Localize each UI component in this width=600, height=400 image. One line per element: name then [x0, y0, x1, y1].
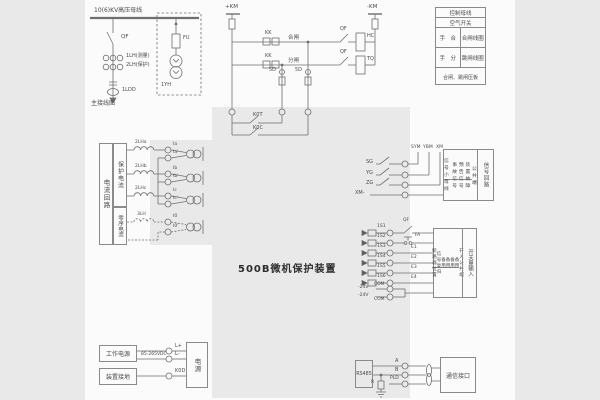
- di-com-label-1: COM: [374, 283, 385, 288]
- legend-row-air-switch: 空气开关: [436, 18, 485, 28]
- comm-wire-b-label: B: [395, 368, 398, 373]
- signal-bus-ybm: YBM: [423, 146, 433, 151]
- terminal-l-plus: L+: [175, 344, 182, 349]
- di-input-6: 1S6: [377, 275, 386, 280]
- terminal-ia: Ia: [173, 143, 177, 148]
- signal-row-bus: 信号小母线: [444, 170, 452, 180]
- di-side-column: 开关量输入: [462, 229, 477, 297]
- signal-row-accident: 事故信号: [452, 170, 459, 180]
- di-neg24-label-1: -24V: [358, 286, 368, 291]
- hv-bus-label: 10(6)KV高压母线: [94, 8, 142, 14]
- terminal-ib: Ib: [173, 167, 177, 172]
- di-spare-1: E1: [411, 246, 417, 251]
- contact-zg: ZG: [366, 181, 373, 186]
- positive-bus-label: +KM: [225, 5, 238, 11]
- legend-manual-trip: 手 分: [436, 48, 461, 67]
- qf-aux-label-1: QF: [340, 27, 347, 32]
- zero-seq-current-column: 零序电流: [113, 207, 127, 245]
- ct-measure-label: 1LH(测量): [126, 54, 150, 59]
- kk-switch-label-1: KK: [265, 31, 272, 36]
- pt-label: 1YH: [161, 83, 171, 88]
- signal-bus-xm: XM: [436, 146, 443, 151]
- signal-row-fault: 装置故障: [465, 170, 472, 180]
- di-spare-3: E3: [411, 266, 417, 271]
- di-spare-4: E4: [411, 276, 417, 281]
- control-legend-table: 控制母线 空气开关 手 合 合闸线圈 手 分 跳闸线圈 合闸、跳闸压板: [435, 7, 486, 85]
- signal-row-warning: 预告信号: [459, 170, 466, 180]
- contact-yg: YG: [366, 171, 373, 176]
- negative-bus-label: -KM: [367, 5, 377, 11]
- schematic-page: 10(6)KV高压母线 QF 1LH(测量) 2LH(保护) 1LDD 主接线图…: [0, 0, 600, 400]
- legend-trip-coil: 跳闸线圈: [461, 48, 485, 67]
- branch-fuse-label-1: 5D: [269, 68, 276, 73]
- device-analog-block: [150, 140, 212, 245]
- di-input-4: 1S4: [377, 255, 386, 260]
- comm-wire-a-label: A: [395, 359, 398, 364]
- current-loop-column: 电流回路: [99, 143, 113, 245]
- terminal-ic: Ic: [173, 189, 177, 194]
- zero-ct-label: 1LDD: [122, 88, 136, 93]
- device-ground-box: 装置接地: [99, 368, 137, 385]
- di-qf-contact-label: QF: [403, 219, 409, 224]
- ct-b-label: 2LHb: [135, 165, 147, 170]
- contact-xm-common: XM-: [355, 191, 365, 196]
- breaker-label: QF: [121, 35, 129, 41]
- terminal-l-minus: L-: [175, 352, 180, 357]
- di-neg24-label-2: -24V: [358, 294, 368, 299]
- terminal-ground: K0D: [175, 369, 185, 374]
- terminal-i0: I0: [173, 215, 177, 220]
- working-power-box: 工作电源: [99, 345, 137, 362]
- oneline-caption: 主接线图: [91, 101, 115, 107]
- terminal-ib-n: Ib': [173, 175, 178, 180]
- ct-zero-label: 3LH: [137, 213, 146, 218]
- di-input-1: 1S1: [377, 225, 386, 230]
- terminal-ia-n: Ia': [173, 151, 178, 156]
- ct-c-label: 2LHc: [135, 187, 146, 192]
- close-output-label: K0C: [253, 126, 263, 131]
- legend-row-control-bus: 控制母线: [436, 8, 485, 18]
- ct-a-label: 2LHa: [135, 141, 147, 146]
- trip-coil-label: TQ: [367, 57, 374, 62]
- close-label: 合闸: [288, 36, 299, 42]
- comm-interface-box: 通信接口: [440, 357, 476, 393]
- power-range-label: 85-265VDC: [141, 353, 167, 358]
- power-module-box: 电源: [186, 342, 208, 388]
- device-block: [212, 107, 410, 398]
- terminal-i0-n: I0': [173, 225, 178, 230]
- contact-sg: SG: [366, 160, 373, 165]
- trip-output-label: K0T: [253, 113, 263, 118]
- protect-current-column: 保护电流: [113, 143, 127, 207]
- di-spare-2: E2: [411, 256, 417, 261]
- ct-protect-label: 2LH(保护): [126, 63, 150, 68]
- signal-bus-sym: SYM: [411, 146, 421, 151]
- terminating-resistor-label: R: [371, 381, 374, 386]
- di-legend-table: 断路器位置 信号复归 备用 备用 备用 备用 开入公共端 开关量输入: [433, 228, 477, 298]
- di-reset-button-label: FA: [415, 234, 420, 239]
- di-input-3: 1S3: [377, 245, 386, 250]
- device-title: 500B微机保护装置: [238, 260, 337, 275]
- closing-coil-label: HC: [367, 34, 374, 39]
- branch-fuse-label-2: 5D: [295, 68, 302, 73]
- comm-shield-label: PLD: [390, 377, 399, 382]
- di-input-2: 1S2: [377, 235, 386, 240]
- trip-label: 分闸: [288, 59, 299, 65]
- di-input-5: 1S5: [377, 265, 386, 270]
- legend-manual-close: 手 合: [436, 28, 461, 47]
- qf-aux-label-2: QF: [340, 50, 347, 55]
- kk-switch-label-2: KK: [265, 54, 272, 59]
- terminal-ic-n: Ic': [173, 197, 178, 202]
- signal-side-column: 信号回路: [477, 150, 493, 200]
- di-com-label-2: COM: [374, 298, 385, 303]
- legend-row-plates: 合闸、跳闸压板: [436, 68, 485, 86]
- signal-legend-table: 信号小母线 事故信号 预告信号 装置故障 公共端 信号回路: [443, 149, 494, 201]
- legend-closing-coil: 合闸线圈: [461, 28, 485, 47]
- fuse-label: FU: [183, 36, 190, 41]
